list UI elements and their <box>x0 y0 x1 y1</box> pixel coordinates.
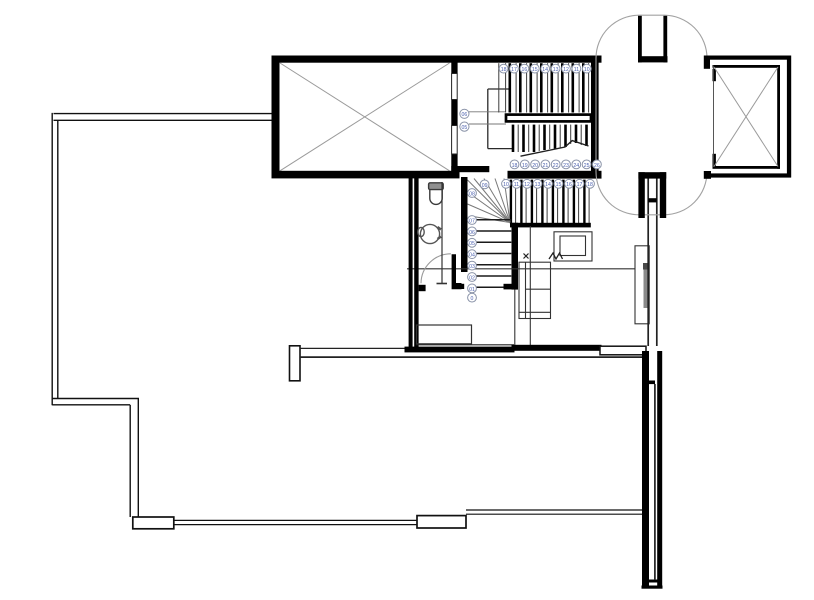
svg-text:21: 21 <box>543 163 549 169</box>
svg-text:09: 09 <box>482 183 488 189</box>
svg-text:06: 06 <box>462 112 468 118</box>
svg-text:13: 13 <box>535 182 541 188</box>
svg-text:15: 15 <box>532 67 538 73</box>
svg-text:07: 07 <box>469 218 475 224</box>
svg-text:05: 05 <box>462 125 468 131</box>
svg-text:13: 13 <box>553 67 559 73</box>
svg-text:23: 23 <box>563 163 569 169</box>
svg-text:22: 22 <box>553 163 559 169</box>
svg-text:16: 16 <box>522 67 528 73</box>
svg-text:18: 18 <box>587 182 593 188</box>
svg-text:04: 04 <box>469 253 475 259</box>
svg-text:20: 20 <box>532 163 538 169</box>
svg-text:25: 25 <box>584 163 590 169</box>
svg-text:12: 12 <box>524 182 530 188</box>
svg-text:14: 14 <box>545 182 551 188</box>
svg-text:11: 11 <box>514 182 519 188</box>
svg-text:18: 18 <box>512 163 518 169</box>
svg-text:24: 24 <box>573 163 579 169</box>
svg-text:15: 15 <box>556 182 562 188</box>
svg-text:19: 19 <box>522 163 528 169</box>
svg-text:16: 16 <box>566 182 572 188</box>
svg-text:10: 10 <box>503 182 509 188</box>
svg-text:03: 03 <box>469 264 475 270</box>
svg-text:10: 10 <box>584 67 590 73</box>
svg-text:08: 08 <box>469 191 475 197</box>
svg-text:12: 12 <box>563 67 569 73</box>
svg-text:26: 26 <box>594 163 600 169</box>
svg-text:14: 14 <box>542 67 548 73</box>
svg-text:17: 17 <box>577 182 583 188</box>
svg-text:01: 01 <box>469 287 475 293</box>
svg-text:06: 06 <box>469 230 475 236</box>
svg-text:0: 0 <box>471 296 474 302</box>
svg-text:02: 02 <box>469 275 475 281</box>
svg-text:11: 11 <box>574 67 579 73</box>
svg-text:18: 18 <box>501 67 507 73</box>
svg-text:05: 05 <box>469 241 475 247</box>
svg-text:17: 17 <box>511 67 517 73</box>
